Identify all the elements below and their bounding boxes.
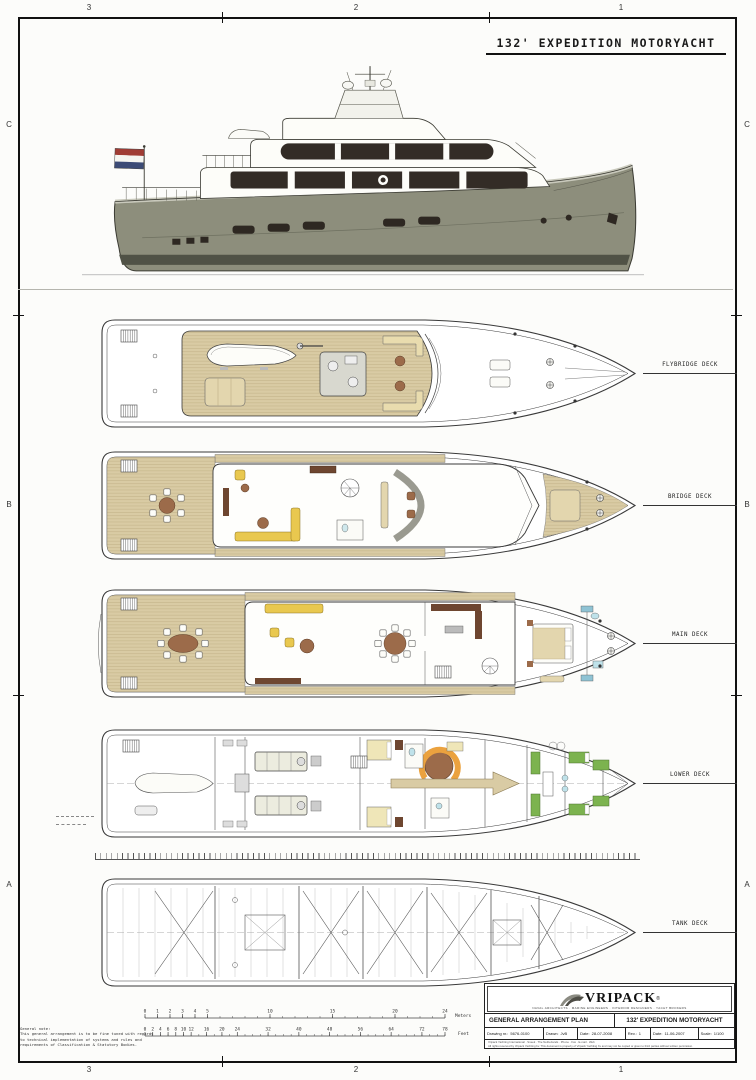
- coffee-table: [300, 639, 314, 653]
- grid-row-label: B: [0, 500, 18, 509]
- crew-bunk: [593, 760, 609, 770]
- sofa: [265, 604, 323, 613]
- svg-text:3: 3: [181, 1009, 184, 1015]
- scale-bar-meters: 01234510152024 Meters: [142, 1006, 482, 1021]
- deck-hatch: [490, 377, 510, 387]
- grid-row-label: A: [738, 880, 756, 889]
- side-deck: [245, 687, 515, 695]
- title-block: VRIPACK® NAVAL ARCHITECTS · MARINE ENGIN…: [484, 983, 735, 1049]
- helm-seat: [407, 510, 415, 518]
- stern-flag: [114, 145, 145, 199]
- svg-text:64: 64: [388, 1027, 394, 1033]
- vripack-logo: VRIPACK® NAVAL ARCHITECTS · MARINE ENGIN…: [487, 986, 732, 1012]
- logo-row: VRIPACK® NAVAL ARCHITECTS · MARINE ENGIN…: [485, 984, 734, 1013]
- field-rev: Rev.:1: [626, 1028, 651, 1039]
- grid-row-label: C: [0, 120, 18, 129]
- bar: [310, 466, 336, 473]
- deck-label-lower: LOWER DECK: [643, 772, 737, 784]
- spiral-stair: [341, 479, 359, 497]
- armchair: [270, 628, 279, 637]
- sofa: [291, 508, 300, 541]
- crew-table: [543, 772, 553, 796]
- crew-bunk: [593, 796, 609, 806]
- grid-row-label: A: [0, 880, 18, 889]
- table: [241, 484, 249, 492]
- cabinet: [223, 488, 229, 516]
- grid-col-label: 3: [80, 3, 98, 12]
- fine-print: Vripack Yachting International · Sneek ·…: [485, 1039, 734, 1049]
- svg-text:20: 20: [219, 1027, 225, 1033]
- armchair: [285, 638, 294, 647]
- frame-tick: [222, 12, 223, 23]
- grid-col-label: 1: [612, 3, 630, 12]
- side-elevation-view: [82, 52, 644, 298]
- drawing-sheet: 3 2 1 3 2 1 C B A C B A 132' EXPEDITION …: [0, 0, 756, 1080]
- jetski: [135, 806, 157, 815]
- crew-bench: [531, 752, 540, 774]
- plan-title: GENERAL ARRANGEMENT PLAN: [485, 1014, 615, 1027]
- svg-text:24: 24: [235, 1027, 241, 1033]
- svg-text:5: 5: [206, 1009, 209, 1015]
- svg-text:10: 10: [267, 1009, 273, 1015]
- sunpad: [550, 490, 580, 521]
- bathroom: [405, 744, 423, 768]
- deck-label-tank: TANK DECK: [643, 921, 737, 933]
- sink: [562, 786, 568, 792]
- main-deck-plan: [95, 586, 640, 701]
- field-rev-date: Date:11-06-2007: [651, 1028, 699, 1039]
- table: [395, 381, 405, 391]
- dining-table: [168, 635, 198, 653]
- svg-text:72: 72: [419, 1027, 425, 1033]
- vripack-swoosh-icon: [559, 991, 585, 1007]
- seat: [447, 742, 463, 751]
- spiral-stair: [482, 658, 498, 674]
- svg-text:20: 20: [392, 1009, 398, 1015]
- galley-counter: [475, 611, 482, 639]
- bath-fixture: [593, 661, 603, 668]
- registered-mark: ®: [656, 996, 660, 1002]
- side-deck: [215, 455, 445, 463]
- frame-tick: [489, 12, 490, 23]
- svg-text:10: 10: [181, 1027, 187, 1033]
- table: [258, 518, 269, 529]
- helm-seat: [407, 492, 415, 500]
- flybridge-deck-plan: [95, 316, 640, 431]
- radar-dome: [342, 81, 353, 89]
- svg-text:1: 1: [156, 1009, 159, 1015]
- closet: [395, 740, 403, 750]
- sofa: [235, 532, 297, 541]
- deck-label-flybridge: FLYBRIDGE DECK: [643, 362, 737, 374]
- waterline-dash: [56, 816, 94, 817]
- grid-col-label: 2: [347, 3, 365, 12]
- notes-line: requirements of Classification & Statuto…: [20, 1042, 175, 1047]
- tender-profile: [229, 129, 270, 138]
- table: [395, 356, 405, 366]
- sink: [562, 775, 568, 781]
- grid-col-label: 2: [347, 1065, 365, 1074]
- scale-unit-label: Meters: [455, 1013, 472, 1019]
- galley-island: [445, 626, 463, 633]
- side-deck: [245, 593, 515, 601]
- field-scale: Scale:1/100: [699, 1028, 734, 1039]
- cabinet: [255, 678, 301, 684]
- crew-bench: [531, 794, 540, 816]
- svg-text:56: 56: [358, 1027, 364, 1033]
- svg-text:32: 32: [265, 1027, 271, 1033]
- closet: [395, 817, 403, 827]
- grid-row-label: B: [738, 500, 756, 509]
- sunpad: [205, 378, 245, 406]
- bath-fixture: [591, 613, 599, 619]
- brand-tagline: NAVAL ARCHITECTS · MARINE ENGINEERS · IN…: [488, 1006, 731, 1010]
- frame-tick: [222, 1056, 223, 1067]
- title-block-header: GENERAL ARRANGEMENT PLAN 132' EXPEDITION…: [485, 1013, 734, 1027]
- deck-label-main: MAIN DECK: [643, 632, 737, 644]
- tank-deck-plan: [95, 875, 640, 990]
- svg-text:12: 12: [188, 1027, 194, 1033]
- svg-text:24: 24: [442, 1009, 448, 1015]
- scale-bar-feet: 02468101216202432404856647278 Feet: [142, 1024, 482, 1039]
- grid-row-label: C: [738, 120, 756, 129]
- laundry: [557, 742, 565, 750]
- transom: [98, 614, 101, 673]
- flybridge-bulwark: [283, 118, 446, 139]
- frame-tick: [489, 1056, 490, 1067]
- galley-counter: [431, 604, 481, 611]
- project-title: 132' EXPEDITION MOTORYACHT: [615, 1017, 734, 1024]
- svg-text:4: 4: [194, 1009, 197, 1015]
- general-notes: General note: This general arrangement i…: [20, 1026, 175, 1048]
- field-drawing-nr: Drawing nr.:5676-0100: [485, 1028, 544, 1039]
- dining-table: [384, 633, 406, 655]
- skylight: [581, 675, 593, 681]
- skylight: [581, 606, 593, 612]
- title-block-fields: Drawing nr.:5676-0100 Drawn:JvB Date:28-…: [485, 1027, 734, 1039]
- svg-text:0: 0: [144, 1009, 147, 1015]
- grid-col-label: 1: [612, 1065, 630, 1074]
- field-date: Date:28-07-2008: [578, 1028, 626, 1039]
- frame-tick: [731, 315, 742, 316]
- mast-base: [320, 352, 366, 396]
- sofa: [540, 676, 564, 682]
- scale-unit-label: Feet: [458, 1031, 469, 1037]
- deck-hatch: [490, 360, 510, 370]
- radar-dome: [381, 79, 392, 87]
- lower-deck-plan: [95, 726, 640, 841]
- frame-station-ruler: [95, 853, 640, 860]
- svg-text:15: 15: [330, 1009, 336, 1015]
- grid-col-label: 3: [80, 1065, 98, 1074]
- svg-text:2: 2: [169, 1009, 172, 1015]
- svg-text:40: 40: [296, 1027, 302, 1033]
- table: [159, 498, 175, 514]
- bridge-deck-plan: [95, 448, 640, 563]
- settee: [381, 482, 388, 528]
- side-deck: [215, 549, 445, 557]
- brand-wordmark: VRIPACK: [585, 991, 656, 1007]
- svg-text:48: 48: [327, 1027, 333, 1033]
- svg-text:16: 16: [204, 1027, 210, 1033]
- frame-tick: [13, 315, 24, 316]
- svg-text:78: 78: [442, 1027, 448, 1033]
- field-drawn: Drawn:JvB: [544, 1028, 578, 1039]
- armchair: [235, 470, 245, 480]
- deck-label-bridge: BRIDGE DECK: [643, 494, 737, 506]
- frame-tick: [731, 695, 742, 696]
- day-head: [337, 520, 363, 540]
- waterline-dash: [56, 824, 86, 825]
- frame-tick: [13, 695, 24, 696]
